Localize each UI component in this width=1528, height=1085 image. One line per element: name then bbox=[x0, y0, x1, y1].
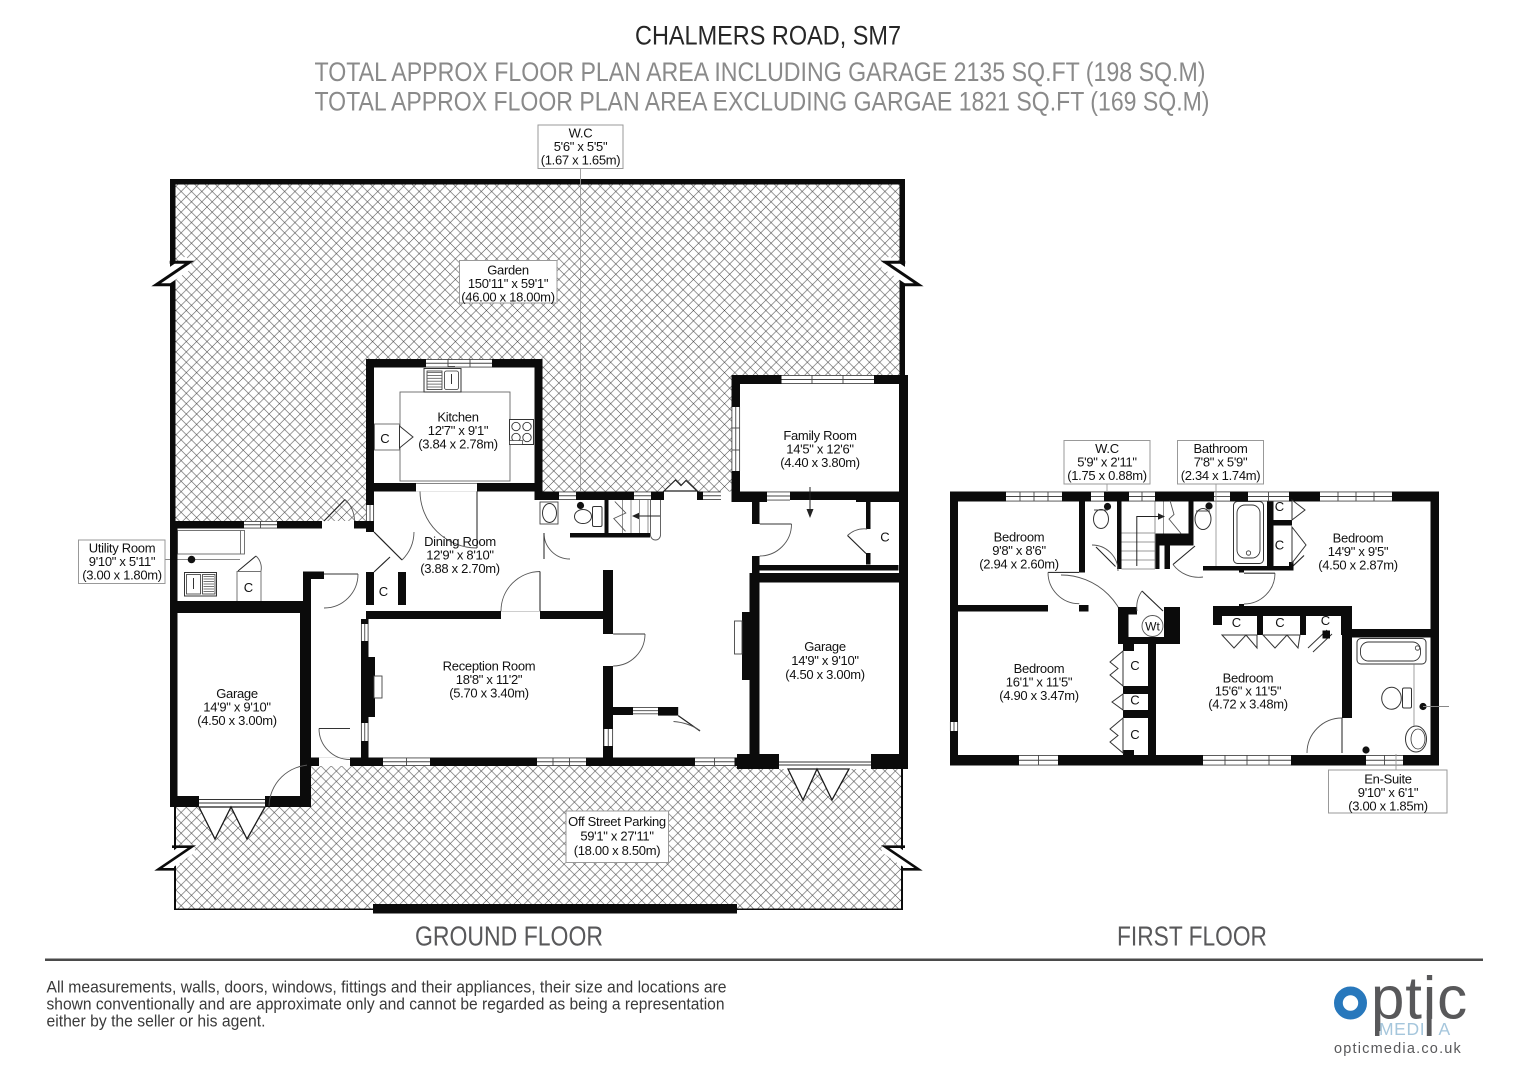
svg-text:14'9" x 9'10": 14'9" x 9'10" bbox=[791, 653, 859, 668]
svg-text:(3.88 x 2.70m): (3.88 x 2.70m) bbox=[420, 561, 500, 576]
svg-text:(1.67 x 1.65m): (1.67 x 1.65m) bbox=[541, 153, 621, 168]
svg-text:C: C bbox=[1130, 727, 1139, 742]
svg-text:C: C bbox=[880, 530, 889, 545]
svg-text:C: C bbox=[1321, 613, 1330, 628]
svg-text:(5.70 x 3.40m): (5.70 x 3.40m) bbox=[449, 686, 529, 701]
svg-text:opticmedia.co.uk: opticmedia.co.uk bbox=[1334, 1041, 1462, 1057]
svg-text:GROUND FLOOR: GROUND FLOOR bbox=[415, 920, 603, 951]
svg-text:(4.72 x 3.48m): (4.72 x 3.48m) bbox=[1208, 697, 1288, 712]
svg-text:either by the seller or his ag: either by the seller or his agent. bbox=[47, 1011, 266, 1030]
svg-text:C: C bbox=[1275, 499, 1284, 514]
svg-text:(2.94 x 2.60m): (2.94 x 2.60m) bbox=[979, 557, 1059, 572]
svg-text:(4.40 x 3.80m): (4.40 x 3.80m) bbox=[780, 455, 860, 470]
svg-text:(4.90 x 3.47m): (4.90 x 3.47m) bbox=[999, 688, 1079, 703]
svg-text:CHALMERS ROAD, SM7: CHALMERS ROAD, SM7 bbox=[635, 21, 901, 51]
svg-text:MEDI: MEDI bbox=[1379, 1019, 1425, 1039]
svg-text:Off Street Parking: Off Street Parking bbox=[568, 814, 666, 829]
svg-text:TOTAL APPROX FLOOR PLAN AREA I: TOTAL APPROX FLOOR PLAN AREA INCLUDING G… bbox=[315, 57, 1206, 87]
svg-text:(46.00 x 18.00m): (46.00 x 18.00m) bbox=[461, 290, 554, 305]
svg-text:(3.00 x 1.80m): (3.00 x 1.80m) bbox=[82, 568, 162, 583]
svg-text:A: A bbox=[1439, 1019, 1451, 1039]
svg-text:C: C bbox=[1130, 658, 1139, 673]
svg-text:C: C bbox=[1232, 615, 1241, 630]
svg-text:Garage: Garage bbox=[804, 639, 846, 654]
svg-text:Wt: Wt bbox=[1145, 620, 1160, 634]
svg-text:FIRST FLOOR: FIRST FLOOR bbox=[1117, 920, 1267, 951]
svg-text:C: C bbox=[379, 584, 388, 599]
svg-text:C: C bbox=[1275, 615, 1284, 630]
svg-text:(3.84 x 2.78m): (3.84 x 2.78m) bbox=[418, 437, 498, 452]
svg-text:(18.00 x 8.50m): (18.00 x 8.50m) bbox=[574, 843, 661, 858]
svg-text:(4.50 x 2.87m): (4.50 x 2.87m) bbox=[1318, 558, 1398, 573]
svg-text:(4.50 x 3.00m): (4.50 x 3.00m) bbox=[785, 667, 865, 682]
svg-text:C: C bbox=[1130, 693, 1139, 708]
svg-text:(1.75 x 0.88m): (1.75 x 0.88m) bbox=[1067, 468, 1147, 483]
svg-text:TOTAL APPROX FLOOR PLAN AREA E: TOTAL APPROX FLOOR PLAN AREA EXCLUDING G… bbox=[315, 87, 1210, 117]
svg-text:59'1" x 27'11": 59'1" x 27'11" bbox=[580, 829, 654, 844]
svg-text:C: C bbox=[244, 580, 253, 595]
svg-text:(2.34 x 1.74m): (2.34 x 1.74m) bbox=[1181, 468, 1261, 483]
svg-text:C: C bbox=[380, 431, 389, 446]
svg-text:(4.50 x 3.00m): (4.50 x 3.00m) bbox=[197, 713, 277, 728]
svg-text:(3.00 x 1.85m): (3.00 x 1.85m) bbox=[1348, 799, 1428, 814]
svg-text:C: C bbox=[1275, 538, 1284, 553]
